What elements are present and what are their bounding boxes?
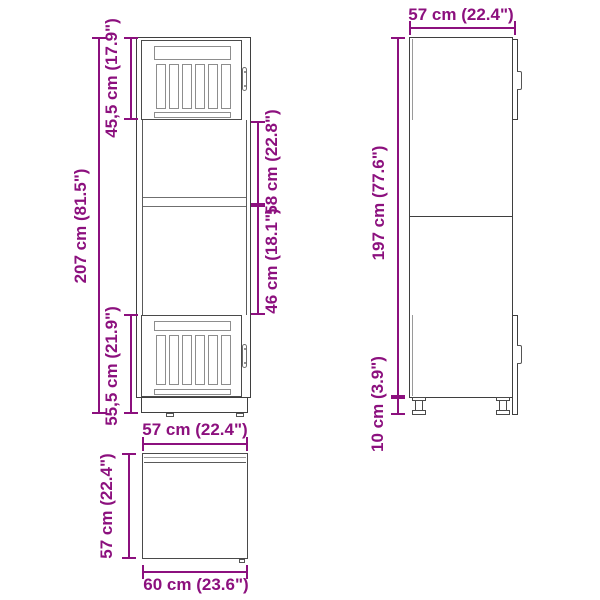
door-slat [195,64,205,109]
dim-line-side-depth [409,27,516,29]
dim-text: 57 cm (22.4") [97,453,117,558]
dim-label-side-depth: 57 cm (22.4") [408,5,513,25]
door-slat [208,64,218,109]
foot-base [496,410,510,415]
side-carcass [409,37,513,398]
dim-text: 45,5 cm (17.9") [102,18,122,138]
dim-line-upper-door [130,37,132,120]
side-foot-left [412,397,426,415]
door-slat [156,335,166,385]
side-foot-right [496,397,510,415]
base-top-line-1 [144,457,246,458]
lower-door-bottom-rail [154,389,231,395]
dim-label-base-depth: 60 cm (23.6") [143,575,248,595]
front-upper-door [141,40,242,120]
dim-line-58 [257,121,259,205]
dim-text: 57 cm (22.4") [142,420,247,439]
door-slat [169,64,179,109]
front-plinth [141,397,248,413]
front-lower-door [141,315,242,397]
side-upper-door-handle [517,71,522,90]
dim-text: 55,5 cm (21.9") [102,306,122,426]
base-top-line-2 [144,462,246,463]
lower-door-handle [242,344,247,368]
dim-text: 57 cm (22.4") [408,5,513,24]
door-slat [182,64,192,109]
side-inner-line-lower [412,315,413,396]
upper-door-handle [242,67,247,91]
door-slat [221,335,231,385]
dim-line-body-height [397,37,399,397]
dim-text: 46 cm (18.1") [262,208,282,313]
dimension-diagram: 207 cm (81.5") 45,5 cm (17.9") 55,5 cm (… [0,0,600,600]
side-lower-door-handle [517,345,522,364]
side-divider-line [410,216,512,217]
front-foot-left [166,413,174,417]
base-foot [239,559,245,563]
dim-text: 58 cm (22.8") [262,109,282,214]
dim-text: 197 cm (77.6") [369,146,389,261]
door-slat [208,335,218,385]
foot-base [412,410,426,415]
base-body [142,453,248,559]
dim-label-front-width: 57 cm (22.4") [142,420,247,440]
dim-line-46 [257,205,259,315]
door-slat [221,64,231,109]
front-middle-opening [142,120,247,315]
door-slat [169,335,179,385]
upper-door-bottom-rail [154,112,231,118]
dim-text: 60 cm (23.6") [143,575,248,594]
front-shelf-band [143,197,246,207]
door-slat [195,335,205,385]
door-slat [182,335,192,385]
dim-text: 10 cm (3.9") [368,356,388,452]
upper-door-top-rail [154,46,231,60]
door-slat [156,64,166,109]
side-lower-door-edge [512,315,518,415]
dim-line-feet-height [397,397,399,415]
dim-line-lower-door [130,314,132,414]
dim-text: 207 cm (81.5") [71,169,91,284]
dim-line-base-depth [142,571,248,573]
dim-line-base-height [128,453,130,559]
dim-line-total-height [98,37,100,414]
front-foot-right [236,413,244,417]
dim-line-front-width [142,443,248,445]
side-inner-line-upper [412,39,413,120]
lower-door-top-rail [154,321,231,331]
